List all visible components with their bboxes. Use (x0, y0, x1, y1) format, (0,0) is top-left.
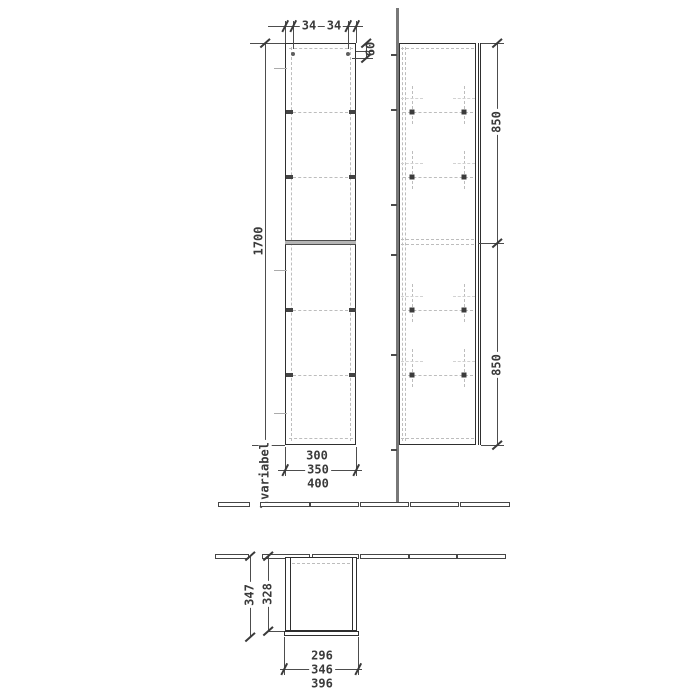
dim-label-plan-width-346: 346 (309, 664, 335, 677)
technical-drawing-tall-cabinet: 34 34 60 1700 variabel 300 350 400 (0, 0, 700, 700)
extension-line (268, 631, 284, 632)
dim-label-depth-overall: 347 (244, 582, 257, 608)
plan-view-dimensions: 347 328 296 346 396 (0, 0, 700, 700)
dim-label-plan-width-396: 396 (309, 678, 335, 691)
dim-label-plan-width-296: 296 (309, 650, 335, 663)
dim-label-depth-body: 328 (262, 581, 275, 607)
